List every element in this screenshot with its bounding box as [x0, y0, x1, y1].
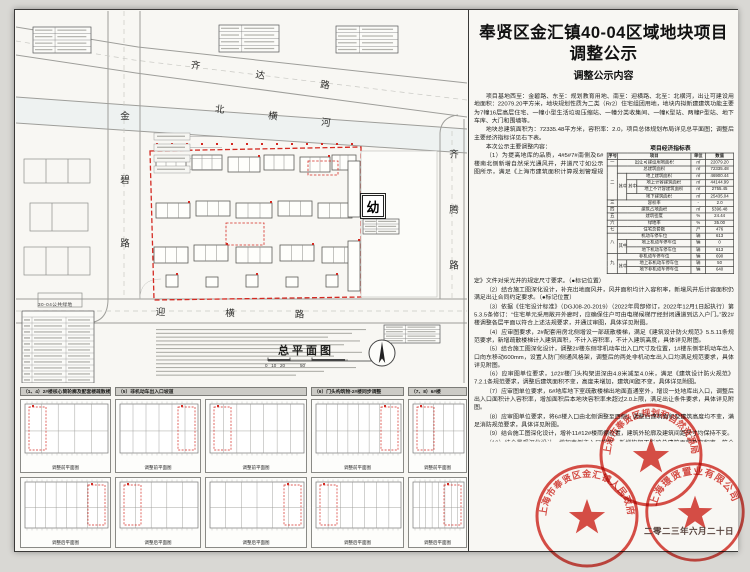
- panel-caption: 调整后平面图: [409, 540, 466, 546]
- panel-caption: 调整前平面图: [312, 465, 403, 471]
- notice-paragraph: 项目基地西至：金碧路、东至：规划教育用地、南至：迎横路、北至：北横河，出让可建设…: [474, 92, 734, 125]
- buildings-layer: [154, 155, 360, 291]
- official-seal-developer: 上海璟贤置业有限公司: [641, 458, 749, 566]
- notice-paragraph: （3）依据《住宅设计标准》（DGJ08-20-2019）（2022年局部修订，2…: [474, 303, 734, 328]
- notice-text-column: 奉贤区金汇镇40-04区域地块项目 调整公示 调整公示内容 项目基地西至：金碧路…: [468, 10, 738, 551]
- notice-paragraph: （5）结合施工图深化设计，调整2#楼东侧非机动车出入口尺寸及位置，1#楼东侧非机…: [474, 345, 734, 370]
- panel-section-header-1: （1、4）2#楼核心筒轮廓及配套楼疏散楼梯: [20, 387, 111, 396]
- panel-caption: 调整后平面图: [116, 540, 200, 546]
- panel-section-header-3: （6）门头构筑物-2#楼同步调整: [311, 387, 404, 396]
- detail-panel: 调整后平面图: [205, 477, 307, 548]
- site-plan: 齐达路 北横河 金碧路 齐腾路 迎横路 幼 30-04公共绿地 总平面图 0 1…: [16, 11, 467, 383]
- notice-date: 二零二三年六月二十日: [644, 525, 734, 537]
- detail-panel: 调整后平面图: [311, 477, 404, 548]
- notice-sheet: 齐达路 北横河 金碧路 齐腾路 迎横路 幼 30-04公共绿地 总平面图 0 1…: [14, 9, 738, 552]
- scanned-notice-page: { "title": {"line1": "奉贤区金汇镇40-04区域地块项目"…: [0, 0, 750, 560]
- compass-icon: [369, 340, 395, 366]
- page-title-line2: 调整公示: [469, 44, 738, 65]
- notes-block: [156, 329, 366, 376]
- economic-indicator-table: 项目经济指标表序号项目单位数值一出让可建设用地面积㎡22079.20二总建筑面积…: [607, 144, 734, 274]
- detail-panel: 调整前平面图: [115, 399, 201, 473]
- detail-panel: 调整后平面图: [20, 477, 111, 548]
- panel-caption: 调整前平面图: [206, 465, 306, 471]
- scale-bar: [268, 358, 378, 362]
- road-label-jinbi: 金碧路: [116, 111, 130, 302]
- detail-panel: 调整前平面图: [408, 399, 467, 473]
- panel-caption: 调整前平面图: [116, 465, 200, 471]
- notice-paragraph: （10）结合景观深化设计，增加南侧主入口构架，新增构架不影响总建筑面积及容积率，…: [474, 438, 734, 441]
- notice-paragraph: （4）应审图要求，2#配套用房北侧增设一部疏散楼梯，满足《建筑设计防火规范》5.…: [474, 328, 734, 344]
- panel-caption: 调整后平面图: [312, 540, 403, 546]
- green-space-label: 30-04公共绿地: [38, 302, 73, 308]
- page-title: 奉贤区金汇镇40-04区域地块项目 调整公示: [469, 23, 738, 64]
- scale-bar-labels: 0 10 20 50: [265, 363, 305, 368]
- notice-paragraph: （6）应审图单位要求，1#2#楼门头构架进深由4.8米减至4.0米，满足《建筑设…: [474, 370, 734, 386]
- notice-paragraph: （8）应审图单位要求，将6#楼入口由北侧调整至西侧，调整后建筑面积及建筑高度均不…: [474, 412, 734, 428]
- notice-paragraph: （7）应审图单位要求，6#地库地下室疏散楼梯出地面直通室外，增设一处地库出入口，…: [474, 387, 734, 412]
- panel-caption: 调整后平面图: [206, 540, 306, 546]
- master-plan-caption: 总平面图: [278, 342, 334, 358]
- legend-table: [22, 311, 94, 383]
- notice-paragraph: （2）结合施工图深化设计，补充出地面风井，风井面积均计入容积率，新增风井后计容面…: [474, 285, 734, 301]
- detail-panel: 调整后平面图: [115, 477, 201, 548]
- detail-panel: 调整前平面图: [205, 399, 307, 473]
- detail-panel: 调整后平面图: [408, 477, 467, 548]
- kindergarten-marker: 幼: [362, 195, 384, 217]
- panel-caption: 调整前平面图: [21, 465, 110, 471]
- panel-caption: 调整前平面图: [409, 465, 466, 471]
- page-title-line1: 奉贤区金汇镇40-04区域地块项目: [469, 23, 738, 44]
- road-label-qiteng: 齐腾路: [445, 149, 459, 316]
- detail-panel: 调整前平面图: [311, 399, 404, 473]
- notice-paragraph: （9）结合施工图深化设计，增补11#12#楼雨棚位置，建筑外轮廓及建筑间距尺寸均…: [474, 429, 734, 437]
- panel-caption: 调整后平面图: [21, 540, 110, 546]
- notice-paragraph: 地块总建筑面积为：72335.48平方米，容积率：2.0，项目总体规划布局详见总…: [474, 125, 734, 141]
- detail-panel: 调整前平面图: [20, 399, 111, 473]
- detail-panels-strip: （1、4）2#楼核心筒轮廓及配套楼疏散楼梯 （5）非机动车出入口坡道 （6）门头…: [16, 387, 468, 550]
- page-subtitle: 调整公示内容: [469, 67, 738, 82]
- panel-section-header-4: （7、8）6#楼: [408, 387, 467, 396]
- svg-text:上海市奉贤区金汇镇人民政府: 上海市奉贤区金汇镇人民政府: [537, 468, 637, 516]
- panel-section-header-2: （5）非机动车出入口坡道: [115, 387, 307, 396]
- notice-body: 项目基地西至：金碧路、东至：规划教育用地、南至：迎横路、北至：北横河，出让可建设…: [474, 92, 734, 441]
- svg-text:上海璟贤置业有限公司: 上海璟贤置业有限公司: [647, 465, 740, 507]
- official-seal-town-government: 上海市奉贤区金汇镇人民政府: [531, 460, 643, 572]
